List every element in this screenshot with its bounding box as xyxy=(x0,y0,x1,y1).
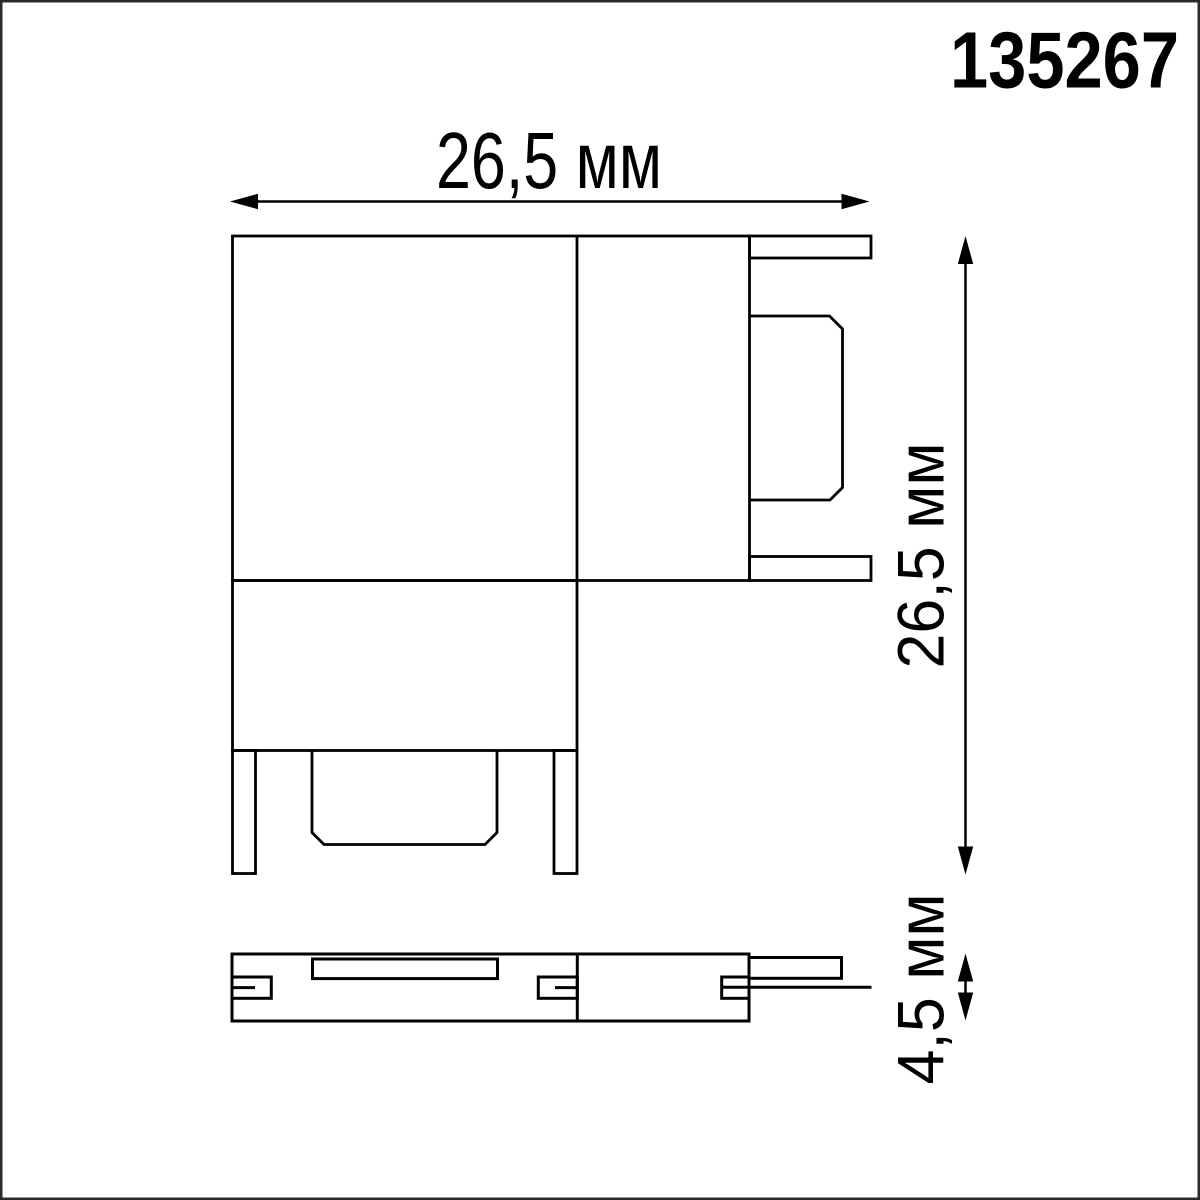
svg-text:26,5 мм: 26,5 мм xyxy=(884,443,958,669)
svg-text:135267: 135267 xyxy=(950,16,1179,105)
svg-text:4,5 мм: 4,5 мм xyxy=(884,894,958,1085)
svg-text:26,5 мм: 26,5 мм xyxy=(436,116,662,205)
